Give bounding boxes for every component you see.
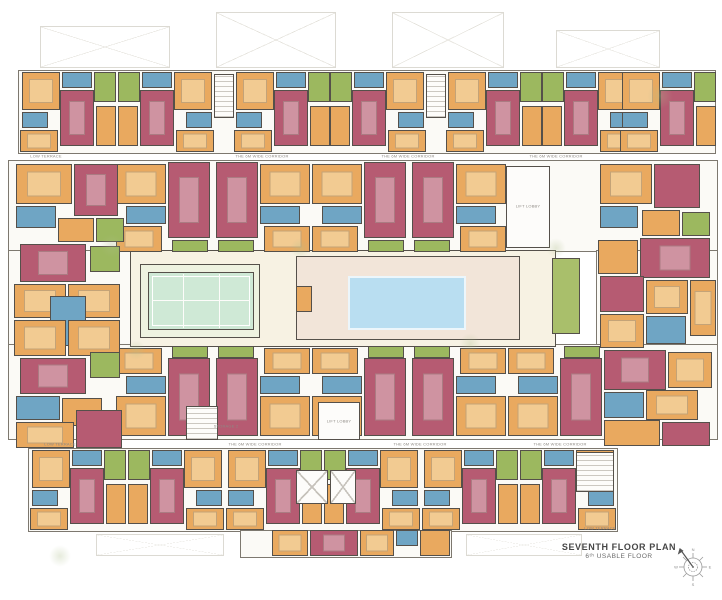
bathroom [354,72,384,88]
bedroom [542,106,562,146]
bed-furniture [517,353,546,370]
bathroom [456,376,496,394]
bathroom [544,450,574,466]
living-dining [352,90,386,146]
bed-furniture [429,512,453,527]
bedroom [118,106,138,146]
bed-furniture [466,404,497,429]
bedroom [58,218,94,242]
bed-furniture [395,134,419,149]
balcony [172,346,208,358]
bedroom [16,164,72,204]
table-furniture [69,101,85,135]
bedroom [456,396,506,436]
lift-core [296,470,328,504]
bed-furniture [273,353,302,370]
bedroom [116,396,166,436]
bathroom [32,490,58,506]
bed-furniture [39,457,63,481]
bedroom [184,450,222,488]
bedroom [174,72,212,110]
corridor-label: LOW TERRACE [44,442,75,447]
bedroom [668,352,712,388]
bedroom [422,508,460,530]
bedroom [312,348,358,374]
bathroom [126,206,166,224]
living-dining [600,276,644,312]
table-furniture [159,479,175,513]
bedroom [508,396,558,436]
living-dining [150,468,184,524]
corridor-label: LOW TERRACE [584,526,615,531]
balcony [368,346,404,358]
bathroom [604,392,644,418]
balcony [542,72,564,102]
table-furniture [669,101,685,135]
multipurpose-hall [552,258,580,334]
bedroom [312,164,362,204]
table-furniture [86,174,106,206]
vegetation-blob [126,340,146,360]
bathroom [456,206,496,224]
bed-furniture [393,79,417,103]
bathroom [22,112,48,128]
bedroom [456,164,506,204]
bed-furniture [125,231,154,248]
table-furniture [227,374,247,421]
bed-furniture [585,512,609,527]
living-dining [412,358,454,436]
living-dining [564,90,598,146]
bedroom [460,226,506,252]
bedroom [260,164,310,204]
living-dining [462,468,496,524]
bathroom [228,490,254,506]
bedroom [382,508,420,530]
compass-icon: N E S W [670,540,716,590]
bathroom [348,450,378,466]
bed-furniture [656,396,688,415]
bathroom [424,490,450,506]
bed-furniture [469,353,498,370]
low-terrace [556,30,660,68]
bedroom [236,72,274,110]
tennis-net-line [219,274,220,328]
tennis-net-line [183,274,184,328]
balcony [104,450,126,480]
living-dining [60,90,94,146]
bed-furniture [270,172,301,197]
bed-furniture [469,231,498,248]
table-furniture [38,251,68,275]
bedroom [264,348,310,374]
living-dining [76,410,122,448]
balcony [682,212,710,236]
svg-text:S: S [692,582,695,587]
bathroom [396,530,418,546]
balcony [94,72,116,102]
bed-furniture [466,172,497,197]
living-dining [310,530,358,556]
bed-furniture [270,404,301,429]
bathroom [464,450,494,466]
bedroom [14,320,66,356]
living-dining [140,90,174,146]
bed-furniture [695,291,712,325]
balcony [218,240,254,252]
table-furniture [38,365,68,388]
bed-furniture [235,457,259,481]
bedroom [22,72,60,110]
bedroom [128,484,148,524]
balcony [118,72,140,102]
bathroom [16,396,60,420]
bathroom [322,376,362,394]
bedroom [234,130,272,152]
bathroom [196,490,222,506]
tennis-court-line [152,300,250,301]
bathroom [600,206,638,228]
floor-plan-title: SEVENTH FLOOR PLAN [560,542,678,552]
bed-furniture [387,457,411,481]
bedroom [620,130,658,152]
bathroom [268,450,298,466]
bedroom [642,210,680,236]
bedroom [68,320,120,356]
table-furniture [375,177,395,223]
balcony [496,450,518,480]
bedroom [360,530,394,556]
staircase [426,74,446,118]
bathroom [186,112,212,128]
bathroom [260,206,300,224]
bedroom [598,240,638,274]
corridor-label: THE 6M WIDE CORRIDOR [228,442,281,447]
bed-furniture [191,457,215,481]
table-furniture [149,101,165,135]
bed-furniture [518,404,549,429]
bathroom [588,490,614,506]
bedroom [272,530,308,556]
deck-cabin [296,286,312,312]
table-furniture [355,479,371,513]
vegetation-blob [459,333,481,355]
living-dining [70,468,104,524]
bed-furniture [233,512,257,527]
table-furniture [660,246,691,271]
bedroom [116,164,166,204]
bedroom [690,280,716,336]
bedroom [520,484,540,524]
bed-furniture [455,79,479,103]
living-dining [20,244,86,282]
bathroom [448,112,474,128]
bedroom [446,130,484,152]
living-dining [662,422,710,446]
bedroom [186,508,224,530]
bed-furniture [321,353,350,370]
table-furniture [495,101,511,135]
bathroom [276,72,306,88]
vegetation-blob [290,238,310,258]
living-dining [604,350,666,390]
vegetation-blob [49,545,71,567]
bedroom [646,280,688,314]
staircase [576,452,614,492]
bedroom [260,396,310,436]
bedroom [380,450,418,488]
bedroom [226,508,264,530]
balcony [694,72,716,102]
corridor-label: THE 6M WIDE CORRIDOR [381,154,434,159]
living-dining [560,358,602,436]
bathroom [260,376,300,394]
bed-furniture [453,134,477,149]
low-terrace [216,12,336,68]
tennis-court-line [152,276,250,326]
balcony [520,450,542,480]
bed-furniture [181,79,205,103]
bed-furniture [27,172,61,197]
bed-furniture [29,79,53,103]
corridor-label: THE 6M WIDE CORRIDOR [393,442,446,447]
bed-furniture [676,359,704,382]
svg-text:W: W [674,565,678,570]
low-terrace [96,534,224,556]
bedroom [448,72,486,110]
bed-furniture [37,512,61,527]
living-dining [216,162,258,238]
living-dining [364,358,406,436]
table-furniture [179,177,199,223]
table-furniture [571,374,591,421]
bathroom [16,206,56,228]
low-terrace [392,12,504,68]
bathroom [126,376,166,394]
bedroom [312,226,358,252]
bedroom [646,390,698,420]
bedroom [386,72,424,110]
bedroom [420,530,450,556]
table-furniture [471,479,487,513]
balcony [308,72,330,102]
living-dining [542,468,576,524]
bed-furniture [627,134,651,149]
bed-furniture [243,79,267,103]
bathroom [392,490,418,506]
table-furniture [275,479,291,513]
bed-furniture [27,134,51,149]
bedroom [604,420,660,446]
bed-furniture [126,172,157,197]
corridor-label: THE 6M WIDE CORRIDOR [529,154,582,159]
bedroom [600,314,644,348]
bed-furniture [279,535,302,552]
bathroom [142,72,172,88]
bathroom [236,112,262,128]
bedroom [176,130,214,152]
bedroom [228,450,266,488]
bedroom [498,484,518,524]
svg-text:E: E [709,565,712,570]
bed-furniture [126,404,157,429]
low-terrace [40,26,170,68]
bed-furniture [389,512,413,527]
bed-furniture [24,327,56,350]
balcony [90,352,120,378]
balcony [520,72,542,102]
bed-furniture [78,327,110,350]
table-furniture [621,358,649,383]
bedroom [424,450,462,488]
bed-furniture [608,320,636,342]
bathroom [488,72,518,88]
balcony [564,346,600,358]
bathroom [398,112,424,128]
living-dining [274,90,308,146]
bedroom [96,106,116,146]
bedroom [106,484,126,524]
bed-furniture [321,231,350,248]
bedroom [696,106,716,146]
bathroom [322,206,362,224]
bedroom [508,348,554,374]
living-dining [364,162,406,238]
table-furniture [227,177,247,223]
bed-furniture [183,134,207,149]
table-furniture [423,177,443,223]
bathroom [152,450,182,466]
living-dining [74,164,118,216]
title-block: SEVENTH FLOOR PLAN 6ᵗʰ USABLE FLOOR [560,542,678,560]
vegetation-blob [100,234,124,258]
table-furniture [323,535,345,552]
bed-furniture [193,512,217,527]
bathroom [566,72,596,88]
bed-furniture [241,134,265,149]
bed-furniture [431,457,455,481]
bathroom [518,376,558,394]
bathroom [622,112,648,128]
corridor-label: STORAGE 2 [214,424,239,429]
corridor-label: LIFT LOBBY [327,419,352,424]
bedroom [310,106,330,146]
living-dining [486,90,520,146]
corridor-label: THE 6M WIDE CORRIDOR [533,442,586,447]
bathroom [72,450,102,466]
living-dining [654,164,700,208]
lift-core [330,470,356,504]
balcony [414,346,450,358]
balcony [218,346,254,358]
bedroom [600,164,652,204]
corridor-label: LOW TERRACE [30,154,61,159]
bed-furniture [322,172,353,197]
table-furniture [375,374,395,421]
living-dining [168,162,210,238]
bedroom [388,130,426,152]
table-furniture [423,374,443,421]
svg-text:N: N [692,547,695,552]
corridor-label: THE 6M WIDE CORRIDOR [235,154,288,159]
living-dining [412,162,454,238]
bedroom [522,106,542,146]
bedroom [20,130,58,152]
swimming-pool [348,276,466,330]
floor-plan-subtitle: 6ᵗʰ USABLE FLOOR [560,553,678,560]
table-furniture [361,101,377,135]
bathroom [62,72,92,88]
staircase [214,74,234,118]
bedroom [330,106,350,146]
table-furniture [283,101,299,135]
balcony [368,240,404,252]
living-dining [640,238,710,278]
floor-plan-canvas: THE 6M WIDE CORRIDORTHE 6M WIDE CORRIDOR… [0,0,722,600]
bed-furniture [610,172,642,197]
bedroom [30,508,68,530]
bed-furniture [366,535,388,552]
living-dining [266,468,300,524]
table-furniture [573,101,589,135]
balcony [330,72,352,102]
balcony [414,240,450,252]
table-furniture [79,479,95,513]
bathroom [646,316,686,344]
balcony [128,450,150,480]
bedroom [32,450,70,488]
vegetation-blob [647,83,673,109]
corridor-label: LIFT LOBBY [516,204,541,209]
bed-furniture [654,286,680,308]
living-dining [20,358,86,394]
balcony [172,240,208,252]
table-furniture [551,479,567,513]
vegetation-blob [546,238,566,258]
